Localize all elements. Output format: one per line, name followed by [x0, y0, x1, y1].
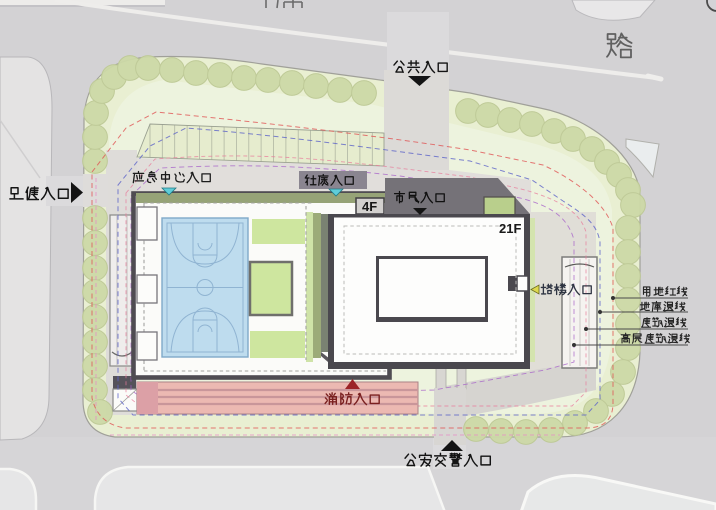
svg-text:4F: 4F: [362, 199, 377, 214]
svg-text:21F: 21F: [499, 221, 521, 236]
